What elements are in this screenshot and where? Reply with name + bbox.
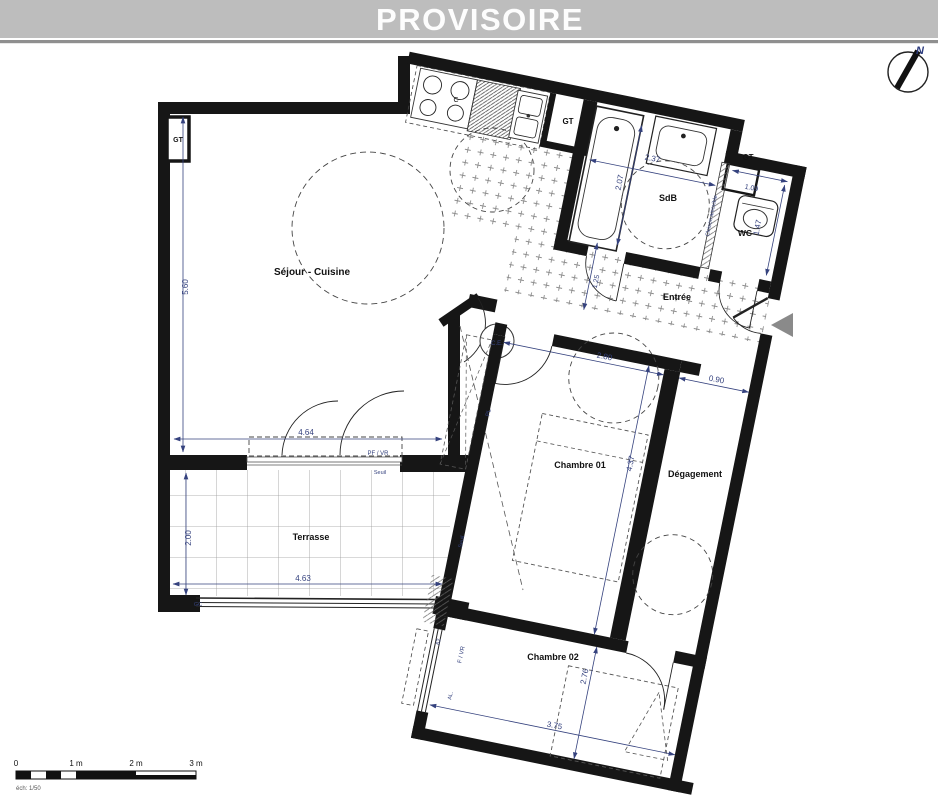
closet-label: PL <box>485 408 493 417</box>
f-vr-label: F / VR <box>457 645 466 664</box>
dim-terrasse-w: 4.63 <box>295 574 311 583</box>
al-label: AL. <box>447 691 455 701</box>
room-label-entree: Entrée <box>663 292 691 302</box>
cooktop <box>411 68 478 129</box>
bay-wall-stub <box>467 294 497 312</box>
room-label-terrasse: Terrasse <box>293 532 330 542</box>
pf-vr-label: PF / VR <box>367 451 389 457</box>
page-title: PROVISOIRE <box>376 2 584 37</box>
entree-floor-hatch <box>504 230 773 344</box>
scale-bar: 0 1 m 2 m 3 m éch: 1/50 <box>14 759 203 792</box>
balcony-sill <box>247 457 402 462</box>
seuil-label-balcony: Seuil <box>374 470 386 476</box>
gt-label-left: GT <box>173 137 183 144</box>
dim-sejour-w: 4.64 <box>298 428 314 437</box>
dim-degagement-w: 0.90 <box>708 374 726 386</box>
room-label-chambre2: Chambre 02 <box>527 652 579 662</box>
seuil-label-chambre2: Seuil <box>458 535 466 548</box>
dim-sejour-h: 5.60 <box>181 279 190 295</box>
scale-tick-1: 1 m <box>69 759 83 768</box>
cooktop-label: C <box>453 97 458 104</box>
dim-chambre1-w: 2.80 <box>596 351 614 363</box>
gt-label-right: GT <box>742 153 753 162</box>
entrance-arrow-icon <box>771 313 793 337</box>
room-label-chambre1: Chambre 01 <box>554 460 606 470</box>
wall-top <box>158 102 410 114</box>
gc-label: GC <box>194 602 202 608</box>
wall-sejour-right <box>448 315 460 457</box>
north-compass-icon: N <box>888 45 928 92</box>
water-heater-label: C.E. <box>491 341 503 347</box>
compass-north-label: N <box>916 45 925 57</box>
dim-chambre1-h: 4.37 <box>625 454 637 472</box>
dim-chambre2-h: 2.76 <box>579 667 591 685</box>
room-label-degagement: Dégagement <box>668 469 722 479</box>
floor-plan: Séjour - Cuisine Terrasse SdB WC Entrée … <box>158 52 825 795</box>
wall-sejour-bottom-left <box>158 455 247 470</box>
terrace-railing <box>196 598 436 608</box>
turning-circle-sejour <box>292 152 444 304</box>
wall-step <box>398 56 410 114</box>
dim-chambre2-w: 3.75 <box>546 720 564 732</box>
floor-plan-page: PROVISOIRE N <box>0 0 938 800</box>
wall-sejour-bottom-right <box>400 455 470 472</box>
balcony-door-arc-2 <box>340 391 404 455</box>
room-label-sdb: SdB <box>659 193 678 203</box>
scale-caption: éch: 1/50 <box>16 786 41 792</box>
scale-tick-2: 2 m <box>129 759 143 768</box>
gt-label-kitchen: GT <box>562 117 573 126</box>
dim-terrasse-h: 2.00 <box>184 530 193 546</box>
washbasin <box>646 116 716 175</box>
header-divider <box>0 40 938 43</box>
room-label-sejour: Séjour - Cuisine <box>274 267 351 278</box>
room-label-wc: WC <box>738 228 752 238</box>
right-wing <box>276 52 825 795</box>
window-62-label: 62 <box>435 638 442 645</box>
chambre2-door-leaf <box>664 663 674 710</box>
wall-left <box>158 102 170 612</box>
scale-tick-3: 3 m <box>189 759 203 768</box>
scale-tick-0: 0 <box>14 759 19 768</box>
removable-partition <box>701 162 730 268</box>
header: PROVISOIRE <box>0 0 938 43</box>
